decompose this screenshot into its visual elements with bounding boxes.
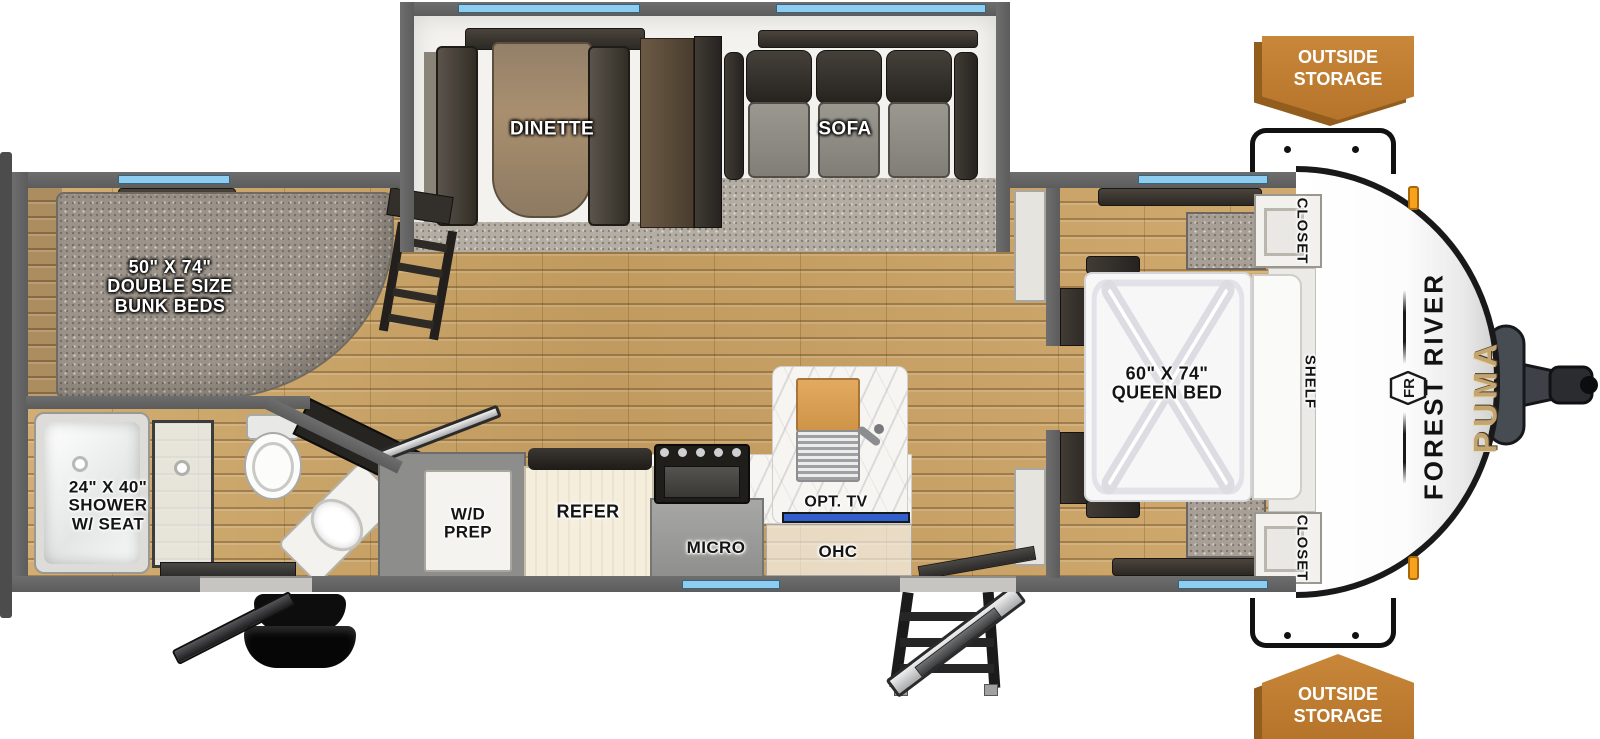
- sofa-back-shelf: [758, 30, 978, 48]
- shower-label-line: W/ SEAT: [69, 515, 148, 533]
- dinette-bench: [588, 46, 630, 226]
- badge-line: STORAGE: [1262, 69, 1414, 91]
- bed-label-line: QUEEN BED: [1112, 384, 1223, 403]
- sofa-armrest: [724, 52, 744, 180]
- refrigerator-top: [528, 448, 652, 470]
- bed-label-line: 60" X 74": [1112, 365, 1223, 384]
- shelf-label: SHELF: [1302, 355, 1319, 409]
- window: [1138, 175, 1268, 184]
- bath-entry-threshold: [200, 576, 312, 592]
- bunk-label-line: DOUBLE SIZE: [107, 277, 232, 296]
- toilet-seat-ring: [252, 442, 294, 492]
- bedroom-overhead-cabinet: [1098, 188, 1262, 206]
- bedroom-overhead-cabinet: [1112, 558, 1270, 576]
- dinette-storage-cabinet: [640, 38, 694, 228]
- range-knob-icon: [660, 448, 669, 457]
- window: [1178, 580, 1268, 589]
- bunk-label-line: BUNK BEDS: [107, 297, 232, 316]
- window: [776, 4, 986, 13]
- closet-bottom: [1254, 512, 1322, 584]
- marker-light-icon: [1408, 556, 1419, 580]
- wd-prep-label: W/D PREP: [444, 506, 492, 543]
- range-knob-icon: [732, 448, 741, 457]
- bath-exterior-step: [244, 626, 356, 668]
- shower-label-line: 24" X 40": [69, 478, 148, 496]
- storage-rivet-icon: [1284, 632, 1291, 639]
- closet-top-label: CLOSET: [1294, 198, 1311, 265]
- slideout-wall-left: [400, 2, 414, 252]
- range-knob-icon: [678, 448, 687, 457]
- sofa-armrest: [954, 52, 978, 180]
- oven-window: [664, 466, 740, 498]
- badge-line: OUTSIDE: [1262, 684, 1414, 706]
- window: [682, 580, 780, 589]
- range-knob-icon: [714, 448, 723, 457]
- shower-head-icon: [72, 456, 88, 472]
- wall-rear: [12, 172, 28, 592]
- faucet-icon: [874, 424, 884, 434]
- microwave-label: MICRO: [687, 539, 746, 557]
- brand-swoosh-line: [1403, 290, 1406, 364]
- badge-line: STORAGE: [1262, 706, 1414, 728]
- kitchen-sink: [796, 430, 860, 482]
- ladder-rung: [392, 288, 439, 304]
- forest-river-logo-icon: FR: [1388, 371, 1428, 405]
- bunk-label-line: 50" X 74": [107, 258, 232, 277]
- bedroom-divider-wall-bottom: [1046, 430, 1060, 578]
- main-entry-threshold: [900, 576, 1016, 592]
- svg-text:FR: FR: [1401, 378, 1418, 398]
- bed-frame-corner: [1086, 500, 1140, 518]
- queen-bed-label: 60" X 74" QUEEN BED: [1112, 365, 1223, 404]
- ladder-rung: [397, 262, 444, 278]
- outside-storage-compartment-bottom: [1250, 598, 1396, 648]
- shower-label: 24" X 40" SHOWER W/ SEAT: [69, 478, 148, 533]
- closet-bottom-label: CLOSET: [1294, 515, 1311, 582]
- wall-bottom-left: [12, 576, 200, 592]
- dinette-label: DINETTE: [510, 120, 594, 141]
- sofa-label: SOFA: [818, 120, 871, 141]
- sofa-seat-back: [816, 50, 882, 104]
- floorplan-diagram: FOREST RIVER FR PUMA OUTSIDE STORAGE OUT…: [0, 0, 1600, 739]
- shower-glass-door: [152, 420, 214, 568]
- range-knob-icon: [696, 448, 705, 457]
- closet-top: [1254, 194, 1322, 268]
- brand-swoosh-line: [1403, 412, 1406, 484]
- badge-line: OUTSIDE: [1262, 47, 1414, 69]
- optional-tv-label: OPT. TV: [804, 493, 867, 510]
- window: [458, 4, 640, 13]
- ladder-rung: [388, 313, 435, 329]
- storage-rivet-icon: [1284, 146, 1291, 153]
- cutting-board: [796, 378, 860, 432]
- marker-light-icon: [1408, 186, 1419, 210]
- shower-door-handle-icon: [174, 460, 190, 476]
- storage-rivet-icon: [1352, 146, 1359, 153]
- queen-bed-headboard: [1252, 274, 1302, 500]
- brand-model-text: PUMA: [1468, 339, 1505, 453]
- step-foot: [984, 684, 998, 696]
- sofa-seat-back: [886, 50, 952, 104]
- wd-label-line: PREP: [444, 524, 492, 542]
- bunk-beds-label: 50" X 74" DOUBLE SIZE BUNK BEDS: [107, 258, 232, 316]
- sofa-seat-back: [746, 50, 812, 104]
- bedroom-divider-wall-top: [1046, 188, 1060, 346]
- optional-tv-strip: [782, 512, 910, 523]
- wall-bottom-middle: [312, 576, 900, 592]
- slideout-wall-right: [996, 2, 1010, 252]
- wardrobe-panel: [1014, 190, 1046, 302]
- outside-storage-badge-bottom: OUTSIDE STORAGE: [1262, 654, 1414, 739]
- entertainment-column: [694, 36, 722, 228]
- refrigerator-label: REFER: [556, 502, 619, 521]
- rear-bumper: [0, 152, 12, 618]
- wd-label-line: W/D: [444, 506, 492, 524]
- shower-label-line: SHOWER: [69, 497, 148, 515]
- sofa-seat-cushion: [748, 102, 810, 178]
- storage-rivet-icon: [1352, 632, 1359, 639]
- refrigerator: [524, 466, 654, 578]
- window: [118, 175, 230, 184]
- sofa-seat-cushion: [888, 102, 950, 178]
- overhead-cabinet-label: OHC: [819, 543, 858, 561]
